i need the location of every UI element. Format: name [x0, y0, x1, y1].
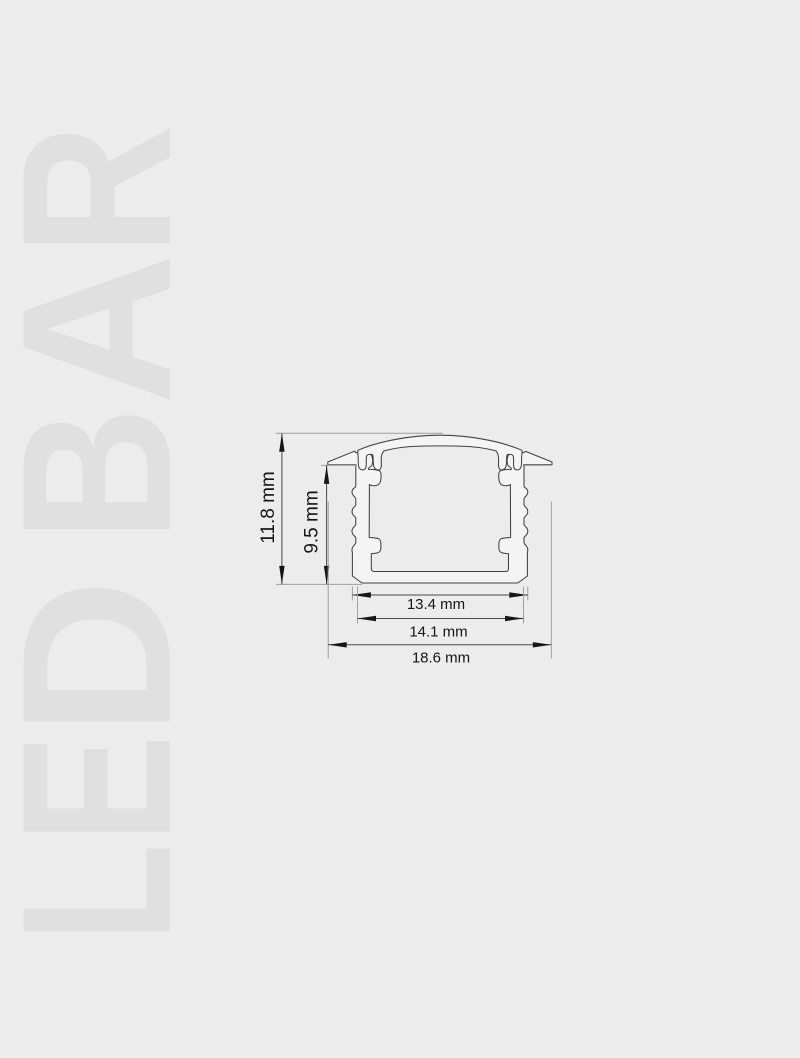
- svg-text:14.1 mm: 14.1 mm: [409, 623, 467, 640]
- svg-text:9.5 mm: 9.5 mm: [302, 490, 323, 553]
- svg-text:L: L: [0, 844, 216, 942]
- svg-text:R: R: [0, 124, 215, 255]
- svg-text:18.6 mm: 18.6 mm: [412, 650, 470, 667]
- svg-text:11.8 mm: 11.8 mm: [258, 471, 279, 544]
- svg-text:B: B: [0, 407, 216, 542]
- svg-text:D: D: [0, 579, 215, 736]
- svg-text:A: A: [0, 253, 215, 405]
- svg-text:13.4 mm: 13.4 mm: [407, 596, 465, 613]
- svg-text:E: E: [0, 735, 216, 843]
